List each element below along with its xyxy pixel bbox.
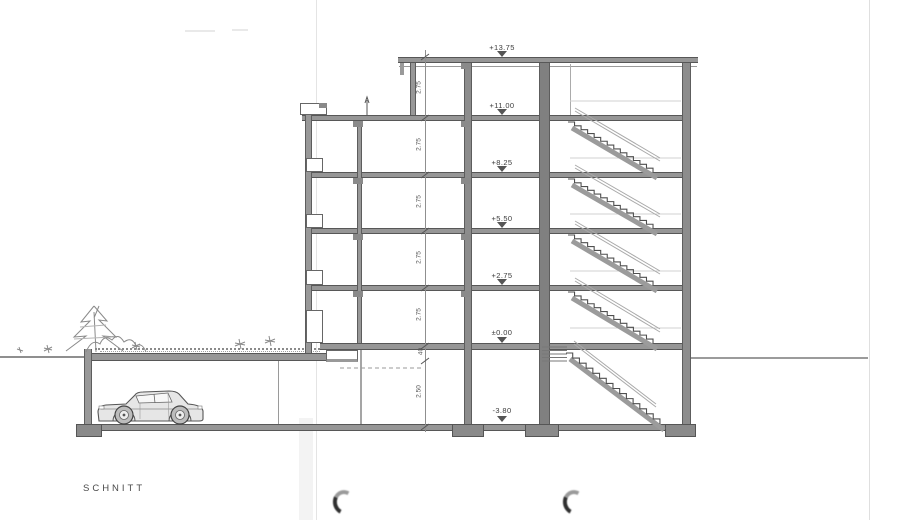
wall-capital xyxy=(461,291,471,297)
garage-joint-line xyxy=(278,361,279,424)
elevation-label-second-floor: +5.50 xyxy=(480,214,524,223)
linework-layer xyxy=(0,0,924,520)
car-wheel xyxy=(115,406,133,424)
sill-box xyxy=(306,214,323,228)
wall-capital xyxy=(461,234,471,240)
stairwell-wall xyxy=(539,63,550,424)
dimension-label: 40 xyxy=(418,337,425,367)
parapet-cap xyxy=(319,103,327,108)
stair-handrails xyxy=(574,108,660,407)
attic-partition-line xyxy=(570,64,571,115)
wall-capital xyxy=(353,291,363,297)
scan-speck xyxy=(232,29,248,31)
scan-shadow-band xyxy=(299,418,313,520)
stair-flight xyxy=(568,122,653,172)
garage-ceiling-slab xyxy=(92,353,326,361)
stair-flight xyxy=(568,292,653,343)
dimension-label: 2.75 xyxy=(416,130,423,160)
elevation-label-roof: +13.75 xyxy=(480,43,524,52)
drawing-title: SCHNITT xyxy=(83,483,145,494)
car-illustration xyxy=(98,391,203,424)
punch-hole-mark xyxy=(330,487,360,518)
stair-flight xyxy=(566,353,660,424)
dimension-label: 2.75 xyxy=(416,73,423,103)
elevation-label-third-floor: +8.25 xyxy=(480,158,524,167)
stair-flight xyxy=(568,179,653,228)
stair-flights xyxy=(566,122,660,424)
dimension-line xyxy=(425,50,426,432)
elevation-label-attic-floor: +11.00 xyxy=(480,101,524,110)
antenna xyxy=(365,97,369,115)
sill-box xyxy=(306,270,323,285)
elevation-label-basement: -3.80 xyxy=(480,406,524,415)
footing xyxy=(525,424,559,437)
scanned-section-drawing: 2.75 2.75 2.75 2.75 2.75 40 2.50 +13.75 … xyxy=(0,0,924,520)
dimension-label: 2.75 xyxy=(416,243,423,273)
tree-illustration xyxy=(66,306,146,352)
dimension-label: 2.75 xyxy=(416,187,423,217)
interior-wall-b xyxy=(464,63,472,424)
dimension-label: 2.75 xyxy=(416,300,423,330)
sill-box xyxy=(306,158,323,172)
wall-capital xyxy=(353,121,363,127)
wall-capital xyxy=(461,121,471,127)
punch-hole-mark xyxy=(560,487,590,518)
footing xyxy=(452,424,484,437)
roof-gutter xyxy=(400,63,404,75)
light-well xyxy=(326,350,358,362)
retaining-wall xyxy=(84,349,92,425)
car-wheel xyxy=(171,406,189,424)
wall-capital xyxy=(353,234,363,240)
gravel-hatch xyxy=(95,348,323,350)
interior-wall-a xyxy=(357,121,362,343)
car-windows xyxy=(136,393,172,403)
footing xyxy=(76,424,102,437)
scan-speck xyxy=(185,30,215,32)
basement-floor-slab xyxy=(84,424,692,431)
page-edge-line xyxy=(869,0,870,520)
right-exterior-wall xyxy=(682,63,691,424)
car-body xyxy=(98,391,203,421)
gravel-hatch xyxy=(100,351,320,352)
ground-floor-parapet xyxy=(306,310,323,343)
wall-capital xyxy=(353,178,363,184)
basement-wall-a xyxy=(360,350,362,424)
elevation-label-first-floor: +2.75 xyxy=(480,271,524,280)
footing xyxy=(665,424,696,437)
wall-capital xyxy=(461,63,471,69)
slab-ground-floor xyxy=(320,343,691,350)
stair-landing-lines xyxy=(570,101,681,328)
dimension-label: 2.50 xyxy=(416,377,423,407)
wall-capital xyxy=(461,178,471,184)
stair-flight xyxy=(568,235,653,285)
page-fold-line xyxy=(316,0,317,520)
elevation-label-ground-floor: ±0.00 xyxy=(480,328,524,337)
